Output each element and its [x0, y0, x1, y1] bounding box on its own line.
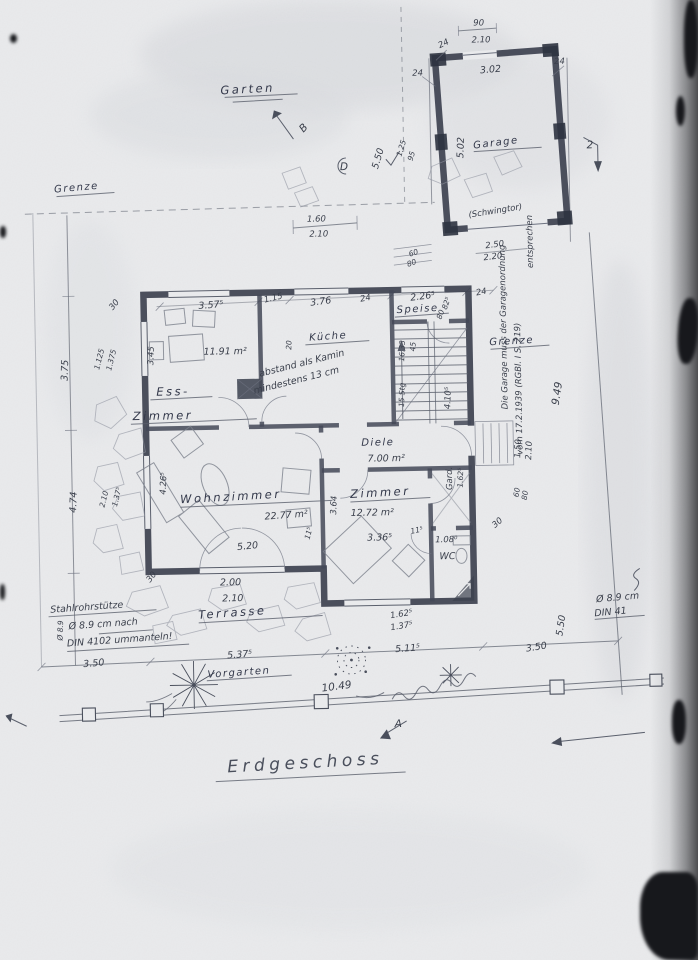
ess-zimmer-label-1: Ess-: [156, 384, 190, 399]
marker-2: 2: [587, 139, 594, 151]
dim-entry-80: 80: [520, 490, 530, 501]
scanned-floor-plan: Garten Grenze Grenze Terrasse Vorgarten …: [0, 0, 698, 960]
floor-plan-drawing: Garten Grenze Grenze Terrasse Vorgarten …: [0, 0, 698, 960]
scan-artifact: [684, 0, 698, 78]
dim-24-c: 24: [554, 57, 565, 67]
zimmer-area: 12.72 m²: [351, 507, 395, 519]
dim-zimmer-364: 3.64: [329, 496, 340, 515]
dim-window-160: 1.60: [307, 214, 326, 224]
dim-top-24a: 24: [359, 293, 372, 305]
gard-label: Gard.: [445, 467, 455, 491]
dim-entry-150: 1.50: [513, 439, 524, 458]
dim-left-345: 3.45: [146, 346, 157, 365]
wc-label: WC: [439, 551, 456, 562]
dim-garage-width: 3.02: [480, 64, 502, 77]
dim-24-b: 24: [412, 69, 423, 79]
shrub-sketch-right: [440, 664, 462, 686]
dim-stairs-4105: 4.10⁵: [443, 386, 454, 409]
scan-edge-band: [650, 0, 698, 960]
dim-front-5115: 5.11⁵: [395, 642, 421, 655]
scan-artifact: [10, 34, 17, 43]
dim-bottom-210: 2.10: [222, 593, 243, 604]
dim-top-3575: 3.57⁵: [198, 299, 224, 312]
dim-wc-108: 1.08⁰: [435, 535, 458, 545]
garage-regulation-3: entsprechen: [525, 215, 536, 268]
scan-artifact: [672, 700, 686, 744]
dim-kueche-20: 20: [284, 340, 293, 350]
diele-area: 7.00 m²: [367, 453, 405, 465]
dim-zimmer-3365: 3.36⁵: [367, 532, 392, 543]
dim-front-350l: 3.50: [83, 657, 105, 670]
marker-d: D: [340, 161, 348, 173]
dim-stairs-45: 45: [408, 341, 417, 351]
dim-left-375: 3.75: [59, 360, 71, 382]
paper-texture: [0, 0, 698, 960]
dim-stairs-15stg: 15 Stg: [397, 382, 407, 407]
dim-bottom-200: 2.00: [220, 577, 241, 588]
scan-artifact: [640, 872, 698, 960]
scan-artifact: [676, 96, 685, 126]
dim-margin-phi: Ø 8.9: [55, 620, 65, 642]
speise-label: Speise: [396, 303, 439, 316]
dim-gard-1625: 1.62⁵: [456, 468, 466, 488]
scan-artifact: [0, 584, 5, 600]
marker-a: A: [394, 718, 402, 730]
dim-garage-depth: 5.02: [455, 137, 467, 159]
dim-stairs-1633: 16.33: [397, 340, 407, 362]
dim-left-4265: 4.26⁵: [159, 472, 170, 495]
dim-top-24b: 24: [475, 287, 488, 299]
dim-entry-210: 2.10: [524, 441, 535, 460]
scan-artifact: [0, 226, 6, 238]
diele-label: Diele: [361, 437, 394, 449]
dim-front-5375: 5.37⁵: [227, 649, 253, 662]
dim-wohn-520: 5.20: [236, 540, 258, 553]
ess-zimmer-label-2: Zimmer: [132, 408, 194, 423]
dim-left-474: 4.74: [68, 491, 80, 513]
garten-label: Garten: [220, 80, 275, 97]
dim-garage-door-height: 2.10: [471, 35, 490, 45]
dim-garage-door-width: 90: [473, 18, 484, 28]
ess-zimmer-area: 11.91 m²: [203, 346, 247, 358]
dim-window-210: 2.10: [309, 229, 328, 239]
